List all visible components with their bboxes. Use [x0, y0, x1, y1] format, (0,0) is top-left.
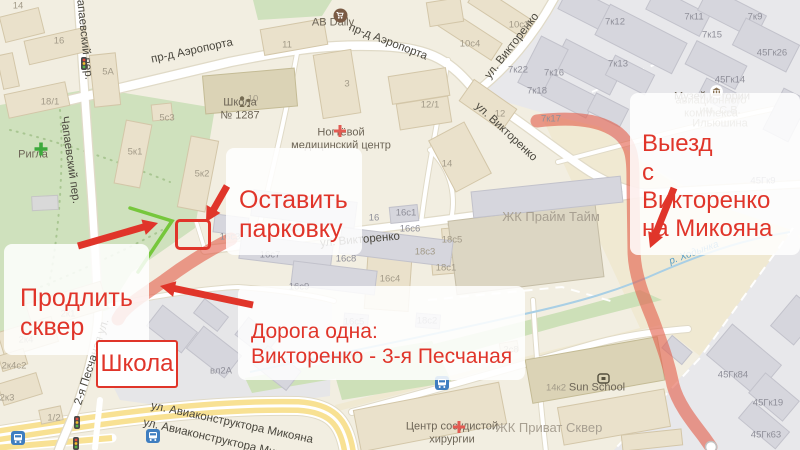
- arrow-extend-park: [78, 220, 158, 247]
- note-exit: Выезд с Викторенко на Микояна: [630, 93, 800, 255]
- note-one-road-text: Дорога одна: Викторенко - 3-я Песчаная: [251, 320, 512, 368]
- note-keep-parking-text: Оставить парковку: [239, 186, 348, 244]
- note-exit-text: Выезд с Викторенко на Микояна: [642, 130, 772, 242]
- note-extend-park-text: Продлить сквер: [20, 284, 133, 342]
- note-school-text: Школа: [101, 350, 174, 378]
- annotation-layer: Оставить парковку Продлить сквер Дорога …: [0, 0, 800, 450]
- parking-rect-outline: [175, 219, 211, 250]
- arrow-keep-parking: [206, 186, 227, 222]
- note-extend-park: Продлить сквер: [4, 244, 149, 355]
- note-keep-parking: Оставить парковку: [226, 148, 362, 255]
- map-canvas[interactable]: пр-д Аэропортапр-д Аэропортаул. Викторен…: [0, 0, 800, 450]
- note-one-road: Дорога одна: Викторенко - 3-я Песчаная: [238, 286, 525, 380]
- note-school: Школа: [96, 340, 178, 388]
